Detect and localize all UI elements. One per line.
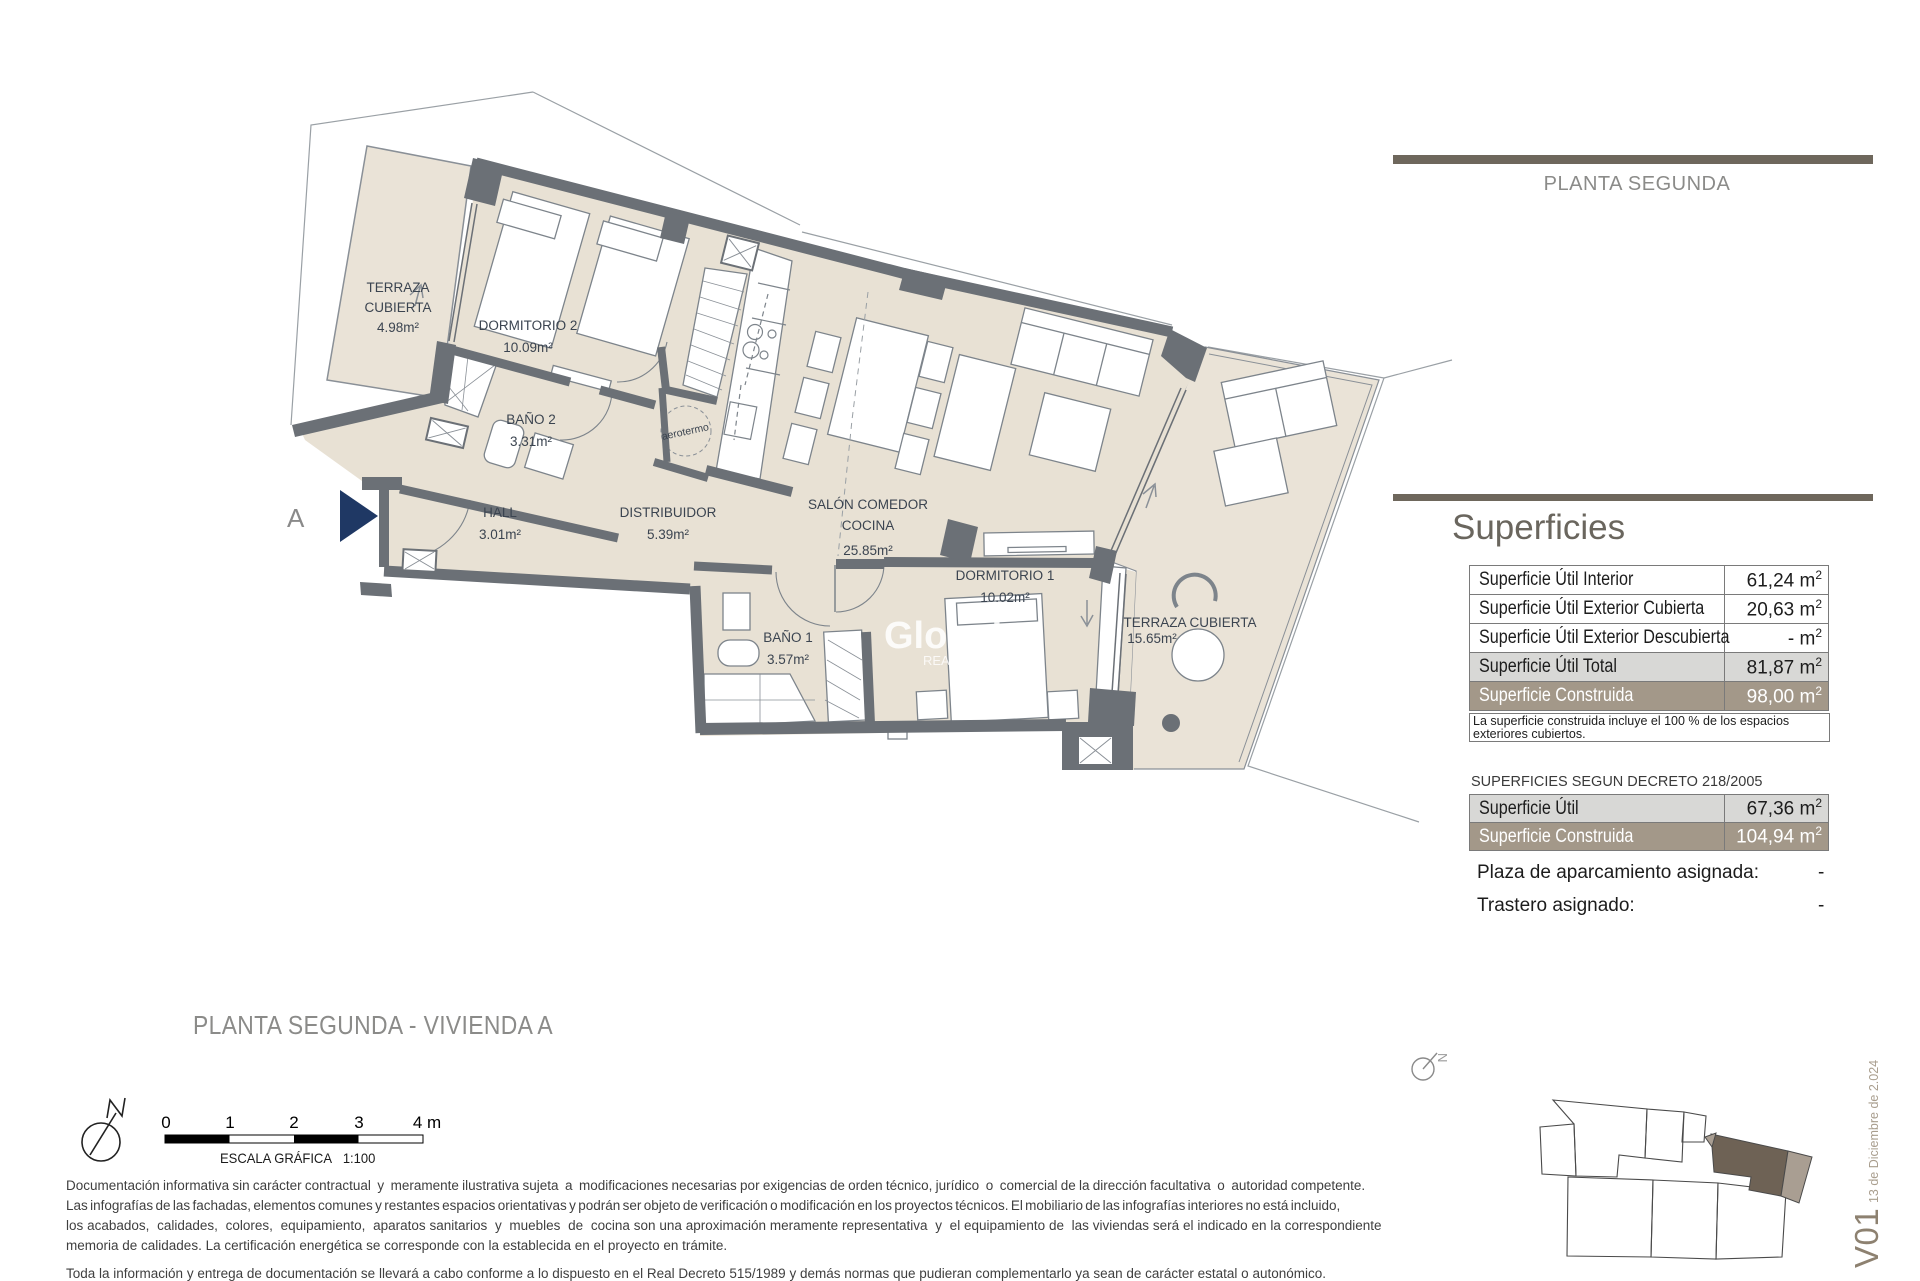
svg-text:5.39m²: 5.39m² bbox=[647, 527, 690, 542]
svg-text:3.31m²: 3.31m² bbox=[510, 434, 553, 449]
svg-text:1: 1 bbox=[225, 1113, 234, 1132]
svg-text:DORMITORIO 1: DORMITORIO 1 bbox=[956, 568, 1055, 583]
svg-text:3.01m²: 3.01m² bbox=[479, 527, 522, 542]
svg-text:HALL: HALL bbox=[483, 505, 517, 520]
svg-text:REAL: REAL bbox=[923, 653, 957, 668]
svg-text:TERRAZA: TERRAZA bbox=[366, 280, 429, 295]
svg-text:DISTRIBUIDOR: DISTRIBUIDOR bbox=[620, 505, 717, 520]
svg-text:4 m: 4 m bbox=[413, 1113, 441, 1132]
svg-text:4.98m²: 4.98m² bbox=[377, 320, 420, 335]
svg-text:COCINA: COCINA bbox=[842, 518, 895, 533]
svg-text:A: A bbox=[287, 503, 305, 533]
svg-text:N: N bbox=[1435, 1053, 1450, 1062]
svg-text:TERRAZA CUBIERTA: TERRAZA CUBIERTA bbox=[1123, 615, 1256, 630]
svg-text:2: 2 bbox=[289, 1113, 298, 1132]
svg-text:DORMITORIO 2: DORMITORIO 2 bbox=[479, 318, 578, 333]
svg-text:15.65m²: 15.65m² bbox=[1127, 631, 1177, 646]
svg-text:10.09m²: 10.09m² bbox=[503, 340, 553, 355]
svg-text:SALÓN COMEDOR: SALÓN COMEDOR bbox=[808, 497, 928, 512]
svg-text:3.57m²: 3.57m² bbox=[767, 652, 810, 667]
svg-text:Global: Global bbox=[884, 615, 1002, 657]
svg-text:10.02m²: 10.02m² bbox=[980, 590, 1030, 605]
svg-text:ESCALA GRÁFICA 1:100: ESCALA GRÁFICA 1:100 bbox=[220, 1151, 375, 1167]
svg-text:CUBIERTA: CUBIERTA bbox=[364, 300, 431, 315]
svg-text:BAÑO 2: BAÑO 2 bbox=[506, 412, 556, 427]
svg-text:3: 3 bbox=[354, 1113, 363, 1132]
svg-text:25.85m²: 25.85m² bbox=[843, 543, 893, 558]
svg-text:BAÑO 1: BAÑO 1 bbox=[763, 630, 813, 645]
svg-text:0: 0 bbox=[161, 1113, 170, 1132]
